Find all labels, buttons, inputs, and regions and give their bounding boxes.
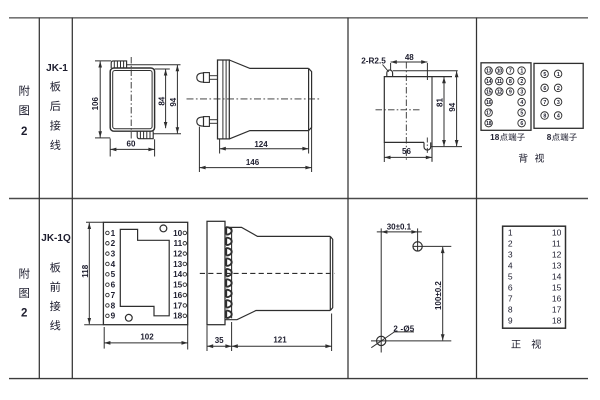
- svg-text:15: 15: [173, 281, 183, 290]
- svg-text:2: 2: [508, 239, 513, 249]
- svg-text:94: 94: [448, 102, 457, 111]
- svg-text:15: 15: [552, 283, 562, 293]
- svg-text:60: 60: [127, 140, 136, 149]
- svg-text:16: 16: [552, 294, 562, 304]
- svg-text:17: 17: [173, 301, 183, 310]
- svg-text:7: 7: [508, 294, 513, 304]
- svg-text:18: 18: [490, 133, 500, 142]
- svg-text:5: 5: [508, 272, 513, 282]
- svg-text:2: 2: [111, 239, 116, 248]
- svg-text:9: 9: [111, 312, 116, 321]
- svg-text:10: 10: [552, 228, 562, 238]
- svg-text:3: 3: [508, 250, 513, 260]
- svg-text:16: 16: [486, 100, 492, 106]
- svg-text:18: 18: [486, 121, 492, 127]
- svg-text:14: 14: [486, 79, 492, 85]
- svg-text:56: 56: [402, 147, 411, 156]
- svg-text:18: 18: [552, 316, 562, 326]
- svg-text:12: 12: [173, 250, 183, 259]
- svg-text:48: 48: [405, 53, 414, 62]
- svg-text:12: 12: [497, 90, 503, 96]
- svg-text:8: 8: [111, 301, 116, 310]
- svg-text:16: 16: [173, 291, 183, 300]
- svg-text:9: 9: [508, 316, 513, 326]
- svg-text:118: 118: [81, 264, 90, 277]
- svg-text:8: 8: [508, 305, 513, 315]
- svg-text:15: 15: [486, 90, 492, 96]
- svg-text:4: 4: [508, 261, 513, 271]
- svg-text:4: 4: [111, 260, 116, 269]
- svg-text:13: 13: [552, 261, 562, 271]
- svg-text:14: 14: [173, 270, 183, 279]
- svg-text:1: 1: [111, 229, 116, 238]
- svg-text:6: 6: [111, 281, 116, 290]
- svg-text:7: 7: [111, 291, 116, 300]
- svg-text:JK-1: JK-1: [46, 63, 68, 74]
- svg-text:10: 10: [497, 69, 503, 75]
- svg-text:124: 124: [254, 140, 268, 149]
- svg-text:13: 13: [173, 260, 183, 269]
- svg-text:11: 11: [497, 79, 502, 85]
- svg-text:100±0.2: 100±0.2: [434, 281, 443, 310]
- svg-text:11: 11: [552, 239, 561, 249]
- svg-text:146: 146: [246, 158, 260, 167]
- svg-text:14: 14: [552, 272, 562, 282]
- svg-text:2: 2: [21, 307, 27, 319]
- svg-text:94: 94: [169, 97, 178, 106]
- svg-text:3: 3: [111, 250, 116, 259]
- svg-text:JK-1Q: JK-1Q: [41, 233, 71, 244]
- svg-text:5: 5: [111, 270, 116, 279]
- svg-text:8: 8: [547, 133, 552, 142]
- svg-text:18: 18: [173, 312, 183, 321]
- svg-text:12: 12: [552, 250, 562, 260]
- svg-text:2-R2.5: 2-R2.5: [361, 56, 386, 65]
- svg-text:2: 2: [21, 126, 27, 138]
- svg-text:17: 17: [486, 111, 492, 117]
- svg-text:84: 84: [157, 96, 166, 105]
- svg-text:121: 121: [273, 336, 287, 345]
- svg-text:10: 10: [173, 229, 183, 238]
- svg-text:13: 13: [486, 69, 492, 75]
- svg-text:17: 17: [552, 305, 562, 315]
- svg-text:6: 6: [508, 283, 513, 293]
- svg-text:35: 35: [215, 336, 224, 345]
- svg-text:1: 1: [508, 228, 513, 238]
- svg-text:11: 11: [174, 239, 183, 248]
- svg-text:102: 102: [140, 332, 154, 341]
- svg-text:106: 106: [91, 96, 100, 110]
- svg-text:30±0.1: 30±0.1: [387, 222, 412, 231]
- svg-text:81: 81: [436, 98, 445, 107]
